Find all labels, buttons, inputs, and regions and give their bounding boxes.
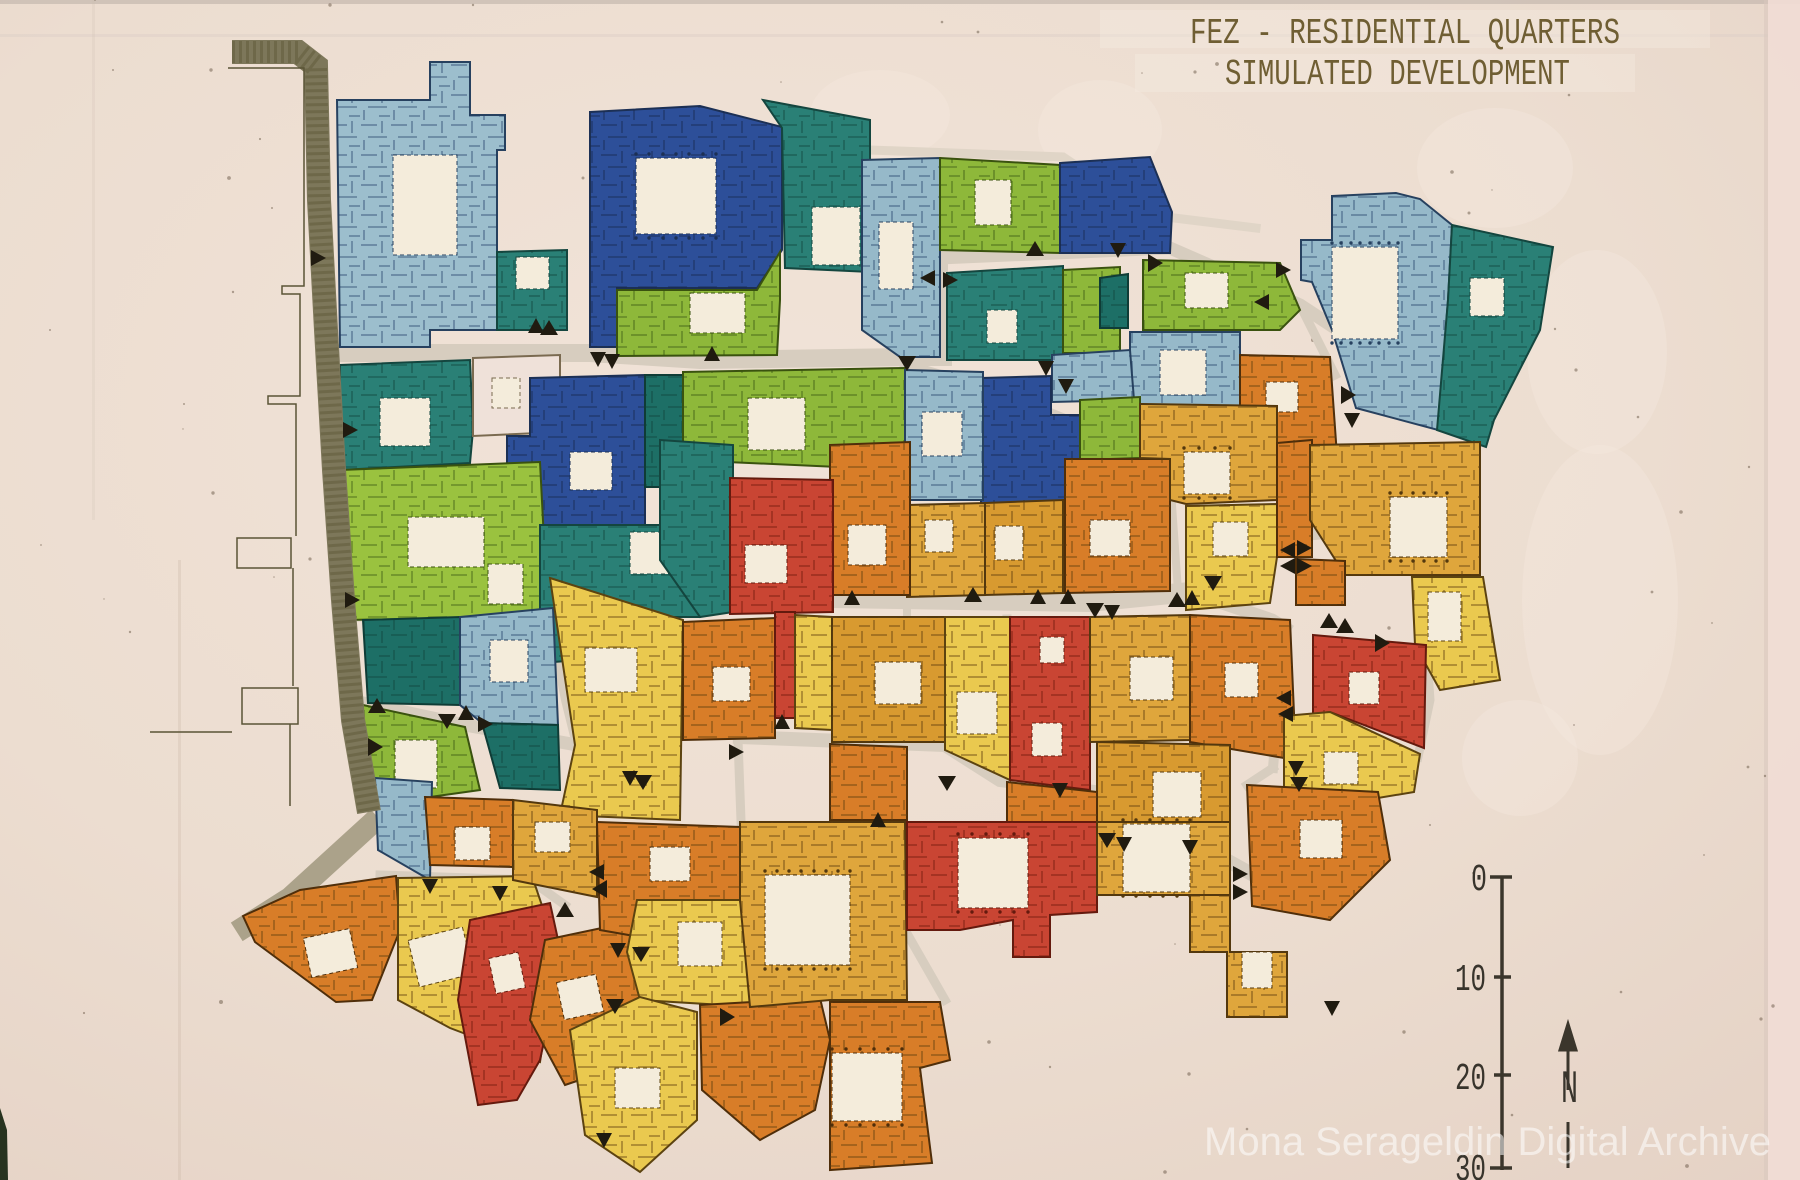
svg-text:0: 0 (1471, 859, 1487, 902)
svg-text:N: N (1561, 1064, 1578, 1116)
svg-text:10: 10 (1455, 959, 1486, 1002)
svg-text:FEZ - RESIDENTIAL QUARTERS: FEZ - RESIDENTIAL QUARTERS (1190, 13, 1620, 54)
svg-text:Mona Serageldin Digital Archiv: Mona Serageldin Digital Archive (1204, 1120, 1771, 1164)
svg-text:20: 20 (1455, 1058, 1486, 1101)
svg-text:SIMULATED DEVELOPMENT: SIMULATED DEVELOPMENT (1225, 54, 1570, 95)
